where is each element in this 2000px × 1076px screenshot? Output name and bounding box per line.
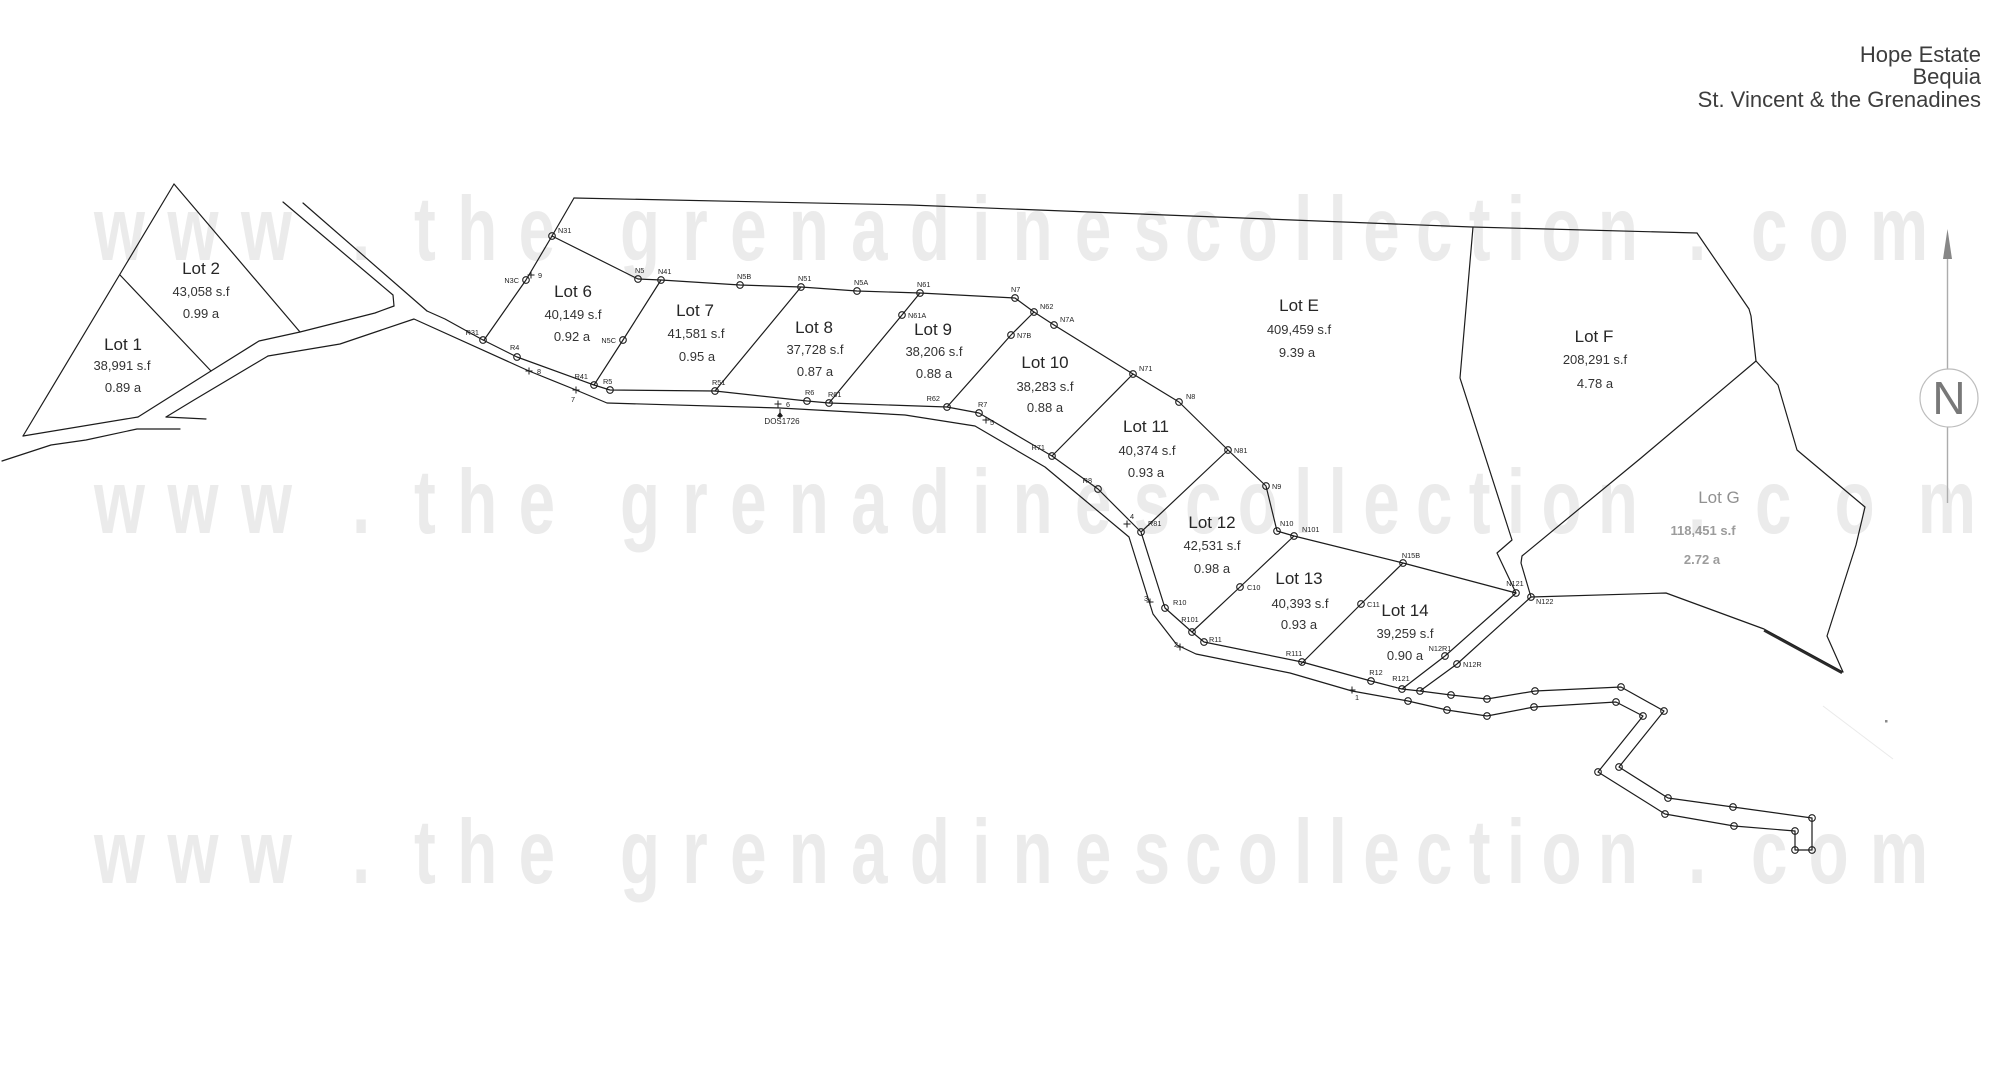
svg-text:38,206 s.f: 38,206 s.f <box>905 344 962 359</box>
svg-text:R51: R51 <box>712 378 725 387</box>
svg-text:com: com <box>1751 177 1928 279</box>
svg-text:N101: N101 <box>1302 525 1319 534</box>
svg-text:1: 1 <box>1355 693 1359 702</box>
svg-text:0.88 a: 0.88 a <box>1027 400 1064 415</box>
svg-text:Lot 9: Lot 9 <box>914 320 952 339</box>
svg-text:39,259 s.f: 39,259 s.f <box>1376 626 1433 641</box>
svg-text:N9: N9 <box>1272 482 1281 491</box>
svg-text:N81: N81 <box>1234 446 1247 455</box>
svg-text:N122: N122 <box>1536 597 1553 606</box>
svg-text:R7: R7 <box>978 400 987 409</box>
svg-text:.: . <box>352 450 370 552</box>
svg-text:38,283 s.f: 38,283 s.f <box>1016 379 1073 394</box>
svg-text:R61: R61 <box>828 390 841 399</box>
svg-text:118,451 s.f: 118,451 s.f <box>1670 523 1736 538</box>
svg-text:Lot 11: Lot 11 <box>1123 417 1169 436</box>
svg-text:Bequia: Bequia <box>1912 64 1981 89</box>
svg-text:N7: N7 <box>1011 285 1020 294</box>
svg-text:N8: N8 <box>1186 392 1195 401</box>
svg-text:0.93 a: 0.93 a <box>1128 465 1165 480</box>
svg-text:.: . <box>1688 177 1706 279</box>
svg-text:40,393 s.f: 40,393 s.f <box>1271 596 1328 611</box>
svg-text:Lot 14: Lot 14 <box>1381 601 1428 620</box>
svg-text:7: 7 <box>571 395 575 404</box>
svg-text:R121: R121 <box>1392 674 1409 683</box>
svg-text:409,459 s.f: 409,459 s.f <box>1267 322 1332 337</box>
svg-text:www: www <box>93 450 292 552</box>
svg-text:5: 5 <box>990 418 994 427</box>
svg-text:Lot 6: Lot 6 <box>554 282 592 301</box>
svg-text:Lot 13: Lot 13 <box>1275 569 1322 588</box>
svg-text:0.89 a: 0.89 a <box>105 380 142 395</box>
svg-text:2: 2 <box>1174 640 1178 649</box>
svg-text:38,991 s.f: 38,991 s.f <box>93 358 150 373</box>
svg-text:2.72 a: 2.72 a <box>1684 552 1721 567</box>
svg-text:0.90 a: 0.90 a <box>1387 648 1424 663</box>
svg-text:N5C: N5C <box>601 336 616 345</box>
svg-text:Lot 12: Lot 12 <box>1188 513 1235 532</box>
svg-text:N5: N5 <box>635 266 644 275</box>
svg-text:N: N <box>1932 372 1965 424</box>
svg-text:R6: R6 <box>805 388 814 397</box>
svg-text:N7A: N7A <box>1060 315 1074 324</box>
svg-text:0.88 a: 0.88 a <box>916 366 953 381</box>
svg-text:C10: C10 <box>1247 583 1260 592</box>
svg-text:N5B: N5B <box>737 272 751 281</box>
svg-text:N121: N121 <box>1506 579 1523 588</box>
svg-text:Lot 7: Lot 7 <box>676 301 714 320</box>
svg-text:42,531 s.f: 42,531 s.f <box>1183 538 1240 553</box>
svg-text:6: 6 <box>786 400 790 409</box>
svg-text:St. Vincent & the Grenadines: St. Vincent & the Grenadines <box>1698 87 1981 112</box>
svg-text:R71: R71 <box>1032 443 1045 452</box>
svg-text:40,374 s.f: 40,374 s.f <box>1118 443 1175 458</box>
svg-text:4: 4 <box>1130 512 1134 521</box>
svg-text:0.92 a: 0.92 a <box>554 329 591 344</box>
svg-text:N61: N61 <box>917 280 930 289</box>
svg-text:41,581 s.f: 41,581 s.f <box>667 326 724 341</box>
svg-text:R5: R5 <box>603 377 612 386</box>
svg-text:0.99 a: 0.99 a <box>183 306 220 321</box>
svg-text:R62: R62 <box>927 394 940 403</box>
svg-text:Lot 10: Lot 10 <box>1021 353 1068 372</box>
svg-text:N71: N71 <box>1139 364 1152 373</box>
svg-text:0.95 a: 0.95 a <box>679 349 716 364</box>
svg-text:Lot G: Lot G <box>1698 488 1740 507</box>
svg-text:R41: R41 <box>575 372 588 381</box>
svg-text:Lot 2: Lot 2 <box>182 259 220 278</box>
svg-text:N15B: N15B <box>1402 551 1420 560</box>
svg-text:37,728 s.f: 37,728 s.f <box>786 342 843 357</box>
svg-text:R10: R10 <box>1173 598 1186 607</box>
svg-text:R4: R4 <box>510 343 519 352</box>
svg-text:com: com <box>1751 800 1928 902</box>
svg-text:R12: R12 <box>1369 668 1382 677</box>
svg-text:4.78 a: 4.78 a <box>1577 376 1614 391</box>
svg-text:3: 3 <box>1144 594 1148 603</box>
svg-text:DOS1726: DOS1726 <box>764 417 800 426</box>
svg-text:.: . <box>352 800 370 902</box>
svg-text:R31: R31 <box>466 328 479 337</box>
svg-text:Lot 1: Lot 1 <box>104 335 142 354</box>
svg-text:www: www <box>93 800 292 902</box>
svg-text:9.39 a: 9.39 a <box>1279 345 1316 360</box>
svg-text:43,058 s.f: 43,058 s.f <box>172 284 229 299</box>
svg-text:N7B: N7B <box>1017 331 1031 340</box>
svg-text:R11: R11 <box>1209 635 1222 644</box>
svg-text:R8: R8 <box>1083 476 1092 485</box>
svg-text:Lot E: Lot E <box>1279 296 1319 315</box>
svg-text:N41: N41 <box>658 267 671 276</box>
svg-text:C11: C11 <box>1367 600 1380 609</box>
svg-text:R81: R81 <box>1148 519 1161 528</box>
svg-text:N5A: N5A <box>854 278 868 287</box>
svg-text:.: . <box>1688 800 1706 902</box>
svg-text:Lot 8: Lot 8 <box>795 318 833 337</box>
svg-text:.: . <box>352 177 370 279</box>
svg-text:the: the <box>414 800 555 902</box>
svg-text:0.98 a: 0.98 a <box>1194 561 1231 576</box>
svg-text:R111: R111 <box>1286 649 1302 658</box>
svg-text:N51: N51 <box>798 274 811 283</box>
svg-text:N12R: N12R <box>1463 660 1482 669</box>
svg-text:N61A: N61A <box>908 311 926 320</box>
svg-text:R101: R101 <box>1181 615 1198 624</box>
svg-text:0.93 a: 0.93 a <box>1281 617 1318 632</box>
svg-text:208,291 s.f: 208,291 s.f <box>1563 352 1628 367</box>
svg-text:N12R1: N12R1 <box>1429 644 1452 653</box>
svg-text:N62: N62 <box>1040 302 1053 311</box>
svg-text:the: the <box>414 450 555 552</box>
svg-text:N3C: N3C <box>504 276 519 285</box>
svg-text:8: 8 <box>537 367 541 376</box>
svg-text:N31: N31 <box>558 226 571 235</box>
svg-text:0.87 a: 0.87 a <box>797 364 834 379</box>
svg-text:40,149 s.f: 40,149 s.f <box>544 307 601 322</box>
svg-text:the: the <box>414 177 555 279</box>
svg-text:Lot F: Lot F <box>1575 327 1614 346</box>
svg-text:9: 9 <box>538 271 542 280</box>
svg-text:com: com <box>1755 450 1976 552</box>
svg-text:N10: N10 <box>1280 519 1293 528</box>
